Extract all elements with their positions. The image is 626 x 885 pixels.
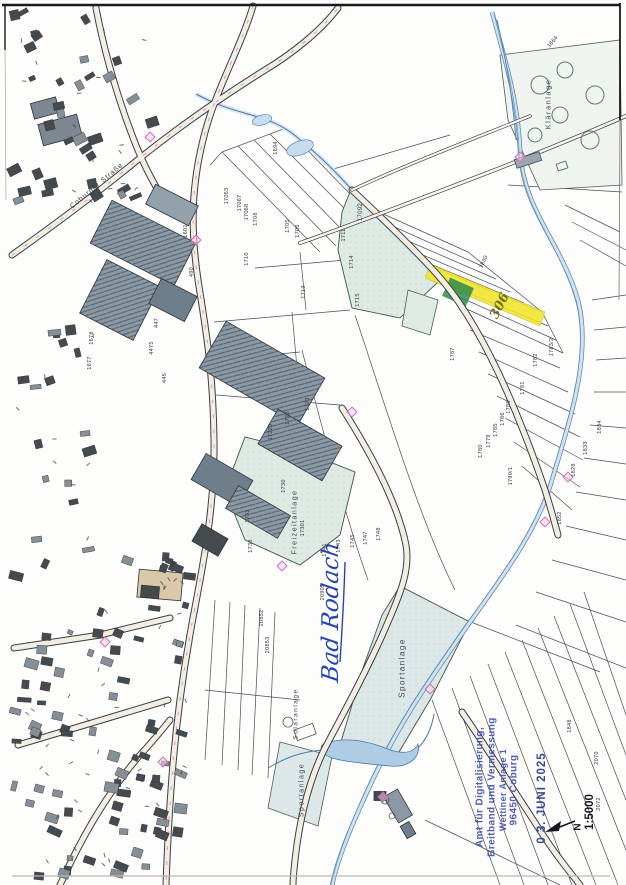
map-canvas [0, 0, 626, 885]
stream [196, 94, 352, 190]
highlighted-parcel [425, 264, 545, 326]
scanned-map-page: Kläranlage Sportanlage Freizeitanlage So… [0, 0, 626, 885]
handwriting-underline [340, 562, 345, 662]
